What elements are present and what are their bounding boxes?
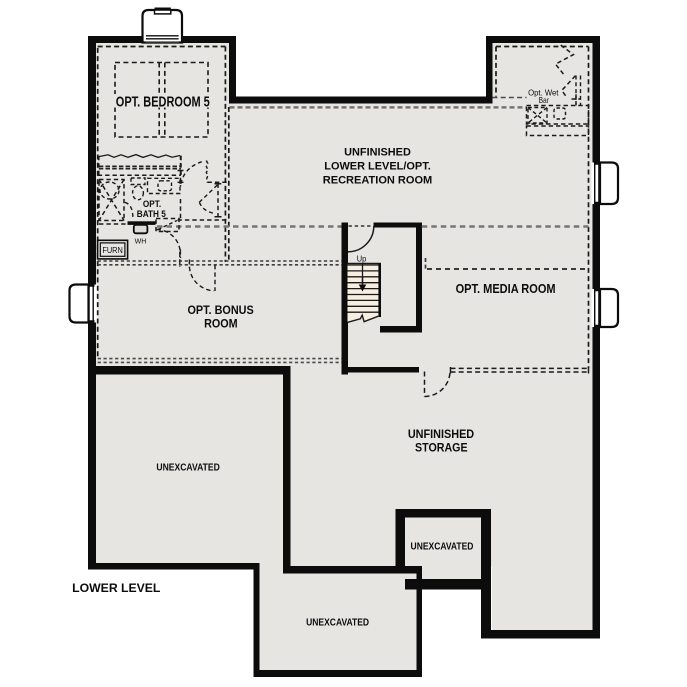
- svg-text:UNEXCAVATED: UNEXCAVATED: [411, 542, 474, 553]
- svg-text:Bar: Bar: [539, 96, 550, 105]
- svg-text:LOWER LEVEL/OPT.: LOWER LEVEL/OPT.: [324, 161, 431, 173]
- svg-text:UNEXCAVATED: UNEXCAVATED: [306, 618, 369, 629]
- svg-text:WH: WH: [135, 237, 147, 246]
- svg-text:Up: Up: [357, 254, 367, 264]
- svg-text:BATH 5: BATH 5: [137, 209, 166, 219]
- svg-text:OPT. MEDIA ROOM: OPT. MEDIA ROOM: [456, 281, 556, 296]
- svg-text:STORAGE: STORAGE: [415, 441, 468, 455]
- svg-text:RECREATION ROOM: RECREATION ROOM: [323, 174, 433, 186]
- svg-text:FURN: FURN: [102, 246, 123, 255]
- svg-text:LOWER LEVEL: LOWER LEVEL: [72, 581, 161, 595]
- svg-text:OPT. BEDROOM 5: OPT. BEDROOM 5: [116, 94, 210, 110]
- svg-text:ROOM: ROOM: [204, 317, 238, 331]
- svg-text:OPT.: OPT.: [143, 199, 161, 209]
- svg-text:UNEXCAVATED: UNEXCAVATED: [156, 462, 219, 473]
- svg-text:UNFINISHED: UNFINISHED: [408, 427, 474, 441]
- svg-text:UNFINISHED: UNFINISHED: [344, 146, 411, 158]
- svg-text:OPT. BONUS: OPT. BONUS: [188, 303, 254, 317]
